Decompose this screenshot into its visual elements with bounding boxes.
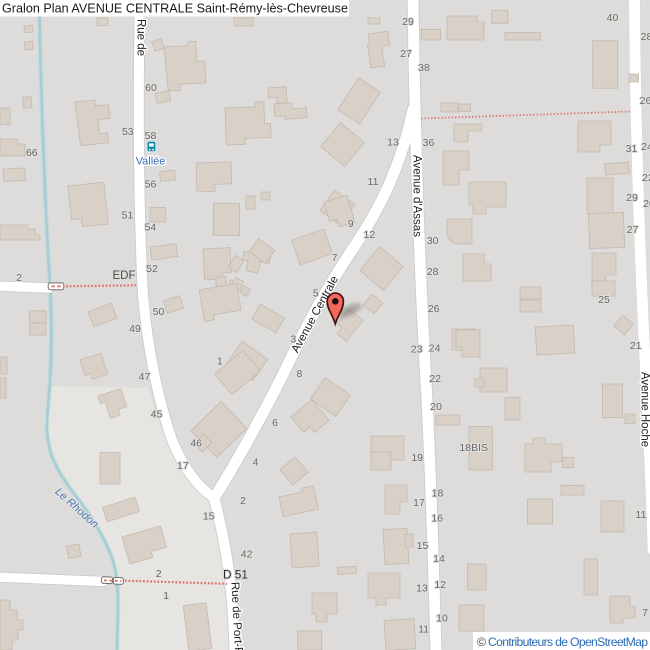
svg-text:10: 10	[436, 613, 448, 625]
svg-text:45: 45	[151, 409, 163, 421]
svg-text:18BIS: 18BIS	[459, 442, 488, 454]
svg-text:28: 28	[427, 266, 439, 278]
svg-text:27: 27	[627, 224, 639, 236]
svg-text:51: 51	[122, 210, 134, 222]
svg-text:D 51: D 51	[223, 568, 248, 582]
svg-text:22: 22	[429, 373, 441, 385]
svg-text:24: 24	[641, 141, 650, 153]
svg-text:14: 14	[433, 553, 445, 565]
svg-text:36: 36	[423, 137, 435, 149]
svg-text:7: 7	[642, 607, 648, 619]
svg-text:17: 17	[177, 460, 189, 472]
svg-text:15: 15	[203, 511, 215, 523]
svg-text:56: 56	[145, 179, 157, 191]
svg-text:29: 29	[626, 192, 638, 204]
svg-text:20: 20	[430, 401, 442, 413]
svg-text:4: 4	[253, 457, 259, 469]
svg-text:13: 13	[416, 583, 428, 595]
svg-text:15: 15	[417, 540, 429, 552]
svg-text:Rue de: Rue de	[135, 19, 147, 56]
svg-text:6: 6	[272, 417, 278, 429]
svg-text:1: 1	[163, 590, 169, 602]
svg-text:60: 60	[145, 82, 157, 94]
svg-text:20: 20	[643, 198, 650, 210]
svg-text:26: 26	[640, 95, 650, 107]
svg-text:21: 21	[630, 340, 642, 352]
svg-text:38: 38	[418, 62, 430, 74]
svg-text:31: 31	[626, 143, 638, 155]
svg-text:26: 26	[428, 303, 440, 315]
svg-text:12: 12	[434, 579, 446, 591]
svg-text:11: 11	[368, 176, 379, 188]
svg-text:Avenue d'Assas: Avenue d'Assas	[411, 155, 423, 237]
svg-text:1: 1	[217, 355, 223, 367]
svg-text:EDF: EDF	[113, 270, 136, 282]
svg-text:11: 11	[418, 624, 429, 636]
svg-text:Avenue Hoche: Avenue Hoche	[639, 372, 650, 447]
svg-text:66: 66	[26, 147, 38, 159]
svg-text:53: 53	[122, 126, 134, 138]
svg-text:Gralon Plan AVENUE CENTRALE Sa: Gralon Plan AVENUE CENTRALE Saint-Rémy-l…	[2, 2, 348, 16]
svg-text:18: 18	[432, 488, 444, 500]
svg-text:11: 11	[636, 509, 647, 521]
svg-text:25: 25	[598, 294, 610, 306]
svg-text:17: 17	[413, 497, 425, 509]
svg-text:54: 54	[145, 222, 157, 234]
svg-text:23: 23	[411, 343, 423, 355]
svg-text:49: 49	[129, 323, 141, 335]
svg-text:19: 19	[411, 452, 423, 464]
svg-text:30: 30	[427, 235, 439, 247]
svg-text:28: 28	[641, 31, 650, 43]
svg-text:46: 46	[190, 437, 202, 449]
svg-text:2: 2	[240, 495, 246, 507]
svg-text:42: 42	[241, 549, 253, 561]
svg-text:2: 2	[16, 272, 22, 284]
svg-text:29: 29	[402, 16, 414, 28]
svg-text:50: 50	[153, 306, 165, 318]
svg-text:8: 8	[296, 368, 302, 380]
svg-text:© Contributeurs de OpenStreetM: © Contributeurs de OpenStreetMap	[477, 635, 648, 649]
svg-text:24: 24	[429, 343, 441, 355]
svg-text:22: 22	[642, 172, 650, 184]
svg-text:47: 47	[139, 371, 151, 383]
svg-text:Vallée: Vallée	[136, 156, 166, 168]
svg-text:16: 16	[431, 513, 443, 525]
svg-text:13: 13	[387, 137, 399, 149]
svg-text:9: 9	[348, 218, 354, 230]
svg-text:2: 2	[156, 568, 162, 580]
svg-text:12: 12	[364, 229, 376, 241]
svg-text:7: 7	[332, 252, 338, 264]
svg-text:27: 27	[400, 48, 412, 60]
svg-text:52: 52	[146, 263, 158, 275]
svg-text:40: 40	[607, 12, 619, 24]
